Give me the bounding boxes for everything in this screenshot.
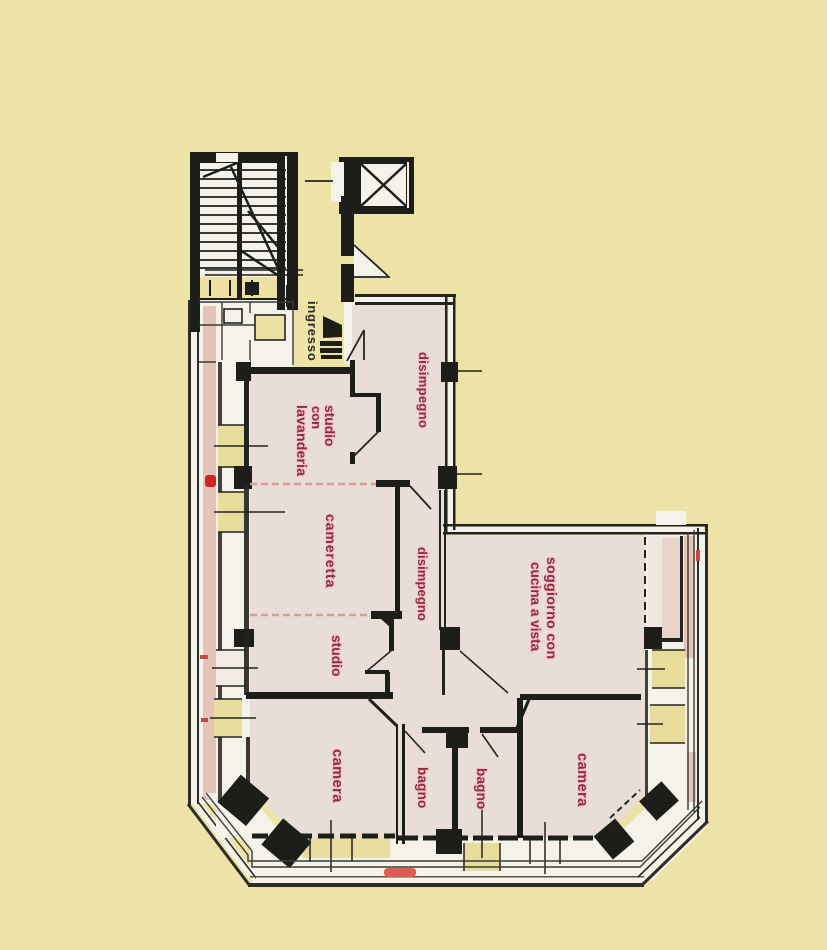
svg-text:soggiorno con: soggiorno con bbox=[544, 557, 560, 659]
svg-text:cameretta: cameretta bbox=[323, 514, 339, 588]
svg-text:ingresso: ingresso bbox=[305, 301, 320, 362]
svg-text:bagno: bagno bbox=[474, 768, 489, 810]
svg-text:camera: camera bbox=[329, 749, 345, 803]
svg-text:disimpegno: disimpegno bbox=[415, 547, 430, 621]
svg-text:studio: studio bbox=[329, 635, 344, 676]
svg-text:cucina a vista: cucina a vista bbox=[528, 562, 543, 652]
svg-text:lavanderia: lavanderia bbox=[294, 405, 310, 476]
svg-text:camera: camera bbox=[574, 753, 590, 807]
svg-text:disimpegno: disimpegno bbox=[416, 352, 431, 428]
svg-text:con: con bbox=[309, 406, 324, 429]
svg-text:bagno: bagno bbox=[415, 767, 430, 809]
